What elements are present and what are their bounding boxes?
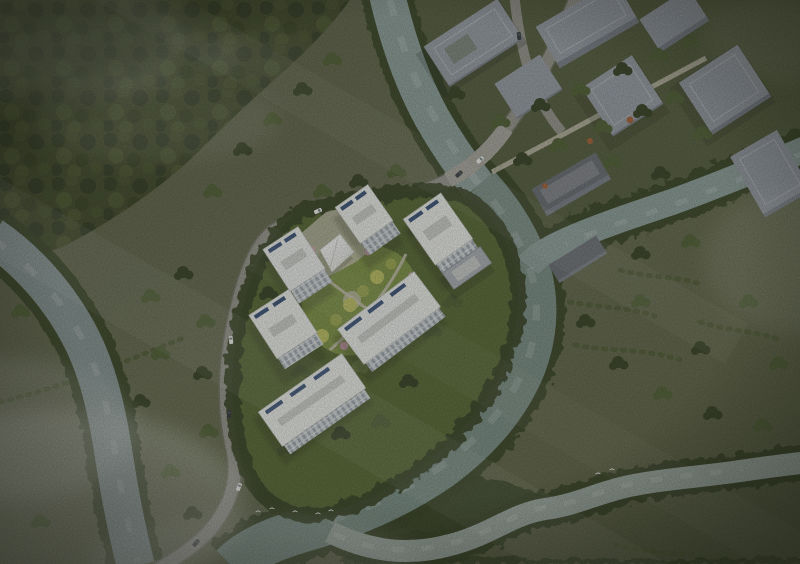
aerial-rendering [0, 0, 800, 564]
aerial-site-rendering-canvas [0, 0, 800, 564]
vignette [0, 0, 800, 564]
atmosphere [0, 0, 800, 564]
